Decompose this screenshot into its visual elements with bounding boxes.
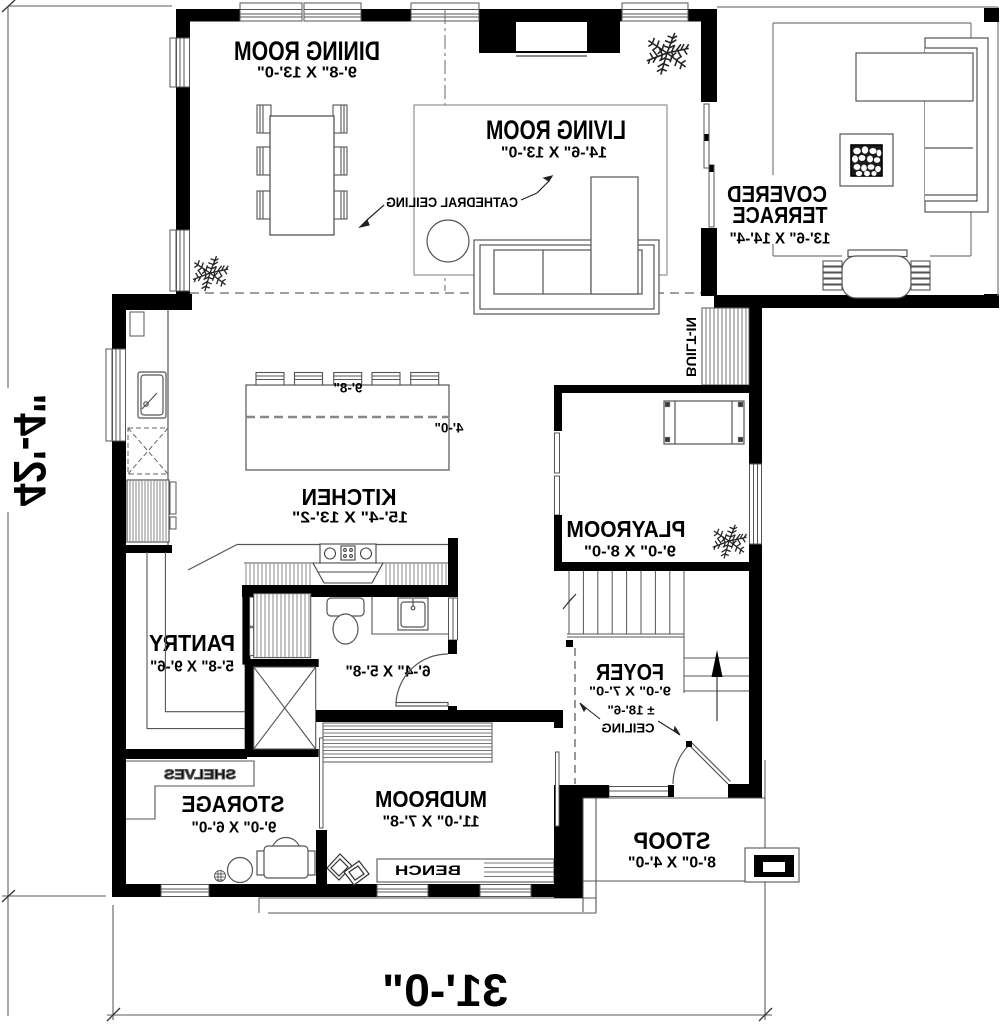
svg-text:MUDROOM: MUDROOM — [375, 786, 487, 812]
svg-text:PANTRY: PANTRY — [149, 630, 235, 656]
svg-text:STORAGE: STORAGE — [182, 791, 285, 817]
svg-text:FOYER: FOYER — [596, 659, 664, 685]
svg-text:31'-0": 31'-0" — [382, 965, 508, 1016]
svg-text:6'-4" X 5'-8": 6'-4" X 5'-8" — [346, 664, 431, 681]
svg-text:SHELVES: SHELVES — [164, 766, 236, 782]
svg-text:9'-0" X 6'-0": 9'-0" X 6'-0" — [192, 820, 277, 837]
svg-text:± 18'-6": ± 18'-6" — [608, 703, 655, 718]
svg-text:9'-0" X 7'-0": 9'-0" X 7'-0" — [589, 684, 671, 699]
svg-text:LIVING ROOM: LIVING ROOM — [486, 115, 626, 145]
svg-text:KITCHEN: KITCHEN — [302, 484, 397, 510]
svg-text:14'-6" X 13'-0": 14'-6" X 13'-0" — [501, 145, 607, 162]
svg-text:BENCH: BENCH — [395, 862, 461, 878]
svg-text:8'-0" X 4'-0": 8'-0" X 4'-0" — [628, 855, 716, 872]
svg-text:9'-8": 9'-8" — [334, 380, 363, 396]
svg-text:TERRACE: TERRACE — [733, 202, 828, 228]
svg-text:9'-8" X 13'-0": 9'-8" X 13'-0" — [257, 65, 357, 82]
svg-text:5'-8" X 9'-6": 5'-8" X 9'-6" — [150, 659, 234, 676]
svg-text:4'-0": 4'-0" — [435, 420, 464, 436]
svg-text:13'-6" X 14'-4": 13'-6" X 14'-4" — [730, 231, 831, 248]
svg-text:STOOP: STOOP — [634, 828, 711, 855]
svg-text:42'-4": 42'-4" — [4, 394, 55, 507]
svg-text:BUILT-IN: BUILT-IN — [684, 317, 700, 377]
svg-text:CEILING: CEILING — [602, 721, 655, 736]
svg-text:DINING ROOM: DINING ROOM — [234, 36, 380, 66]
svg-text:9'-0" X 8'-0": 9'-0" X 8'-0" — [584, 544, 676, 561]
svg-text:PLAYROOM: PLAYROOM — [567, 516, 686, 542]
svg-text:11'-0" X 7'-8": 11'-0" X 7'-8" — [383, 814, 480, 831]
svg-text:15'-4" X 13'-2": 15'-4" X 13'-2" — [292, 510, 408, 527]
svg-text:CATHEDRAL CEILING: CATHEDRAL CEILING — [386, 194, 518, 210]
